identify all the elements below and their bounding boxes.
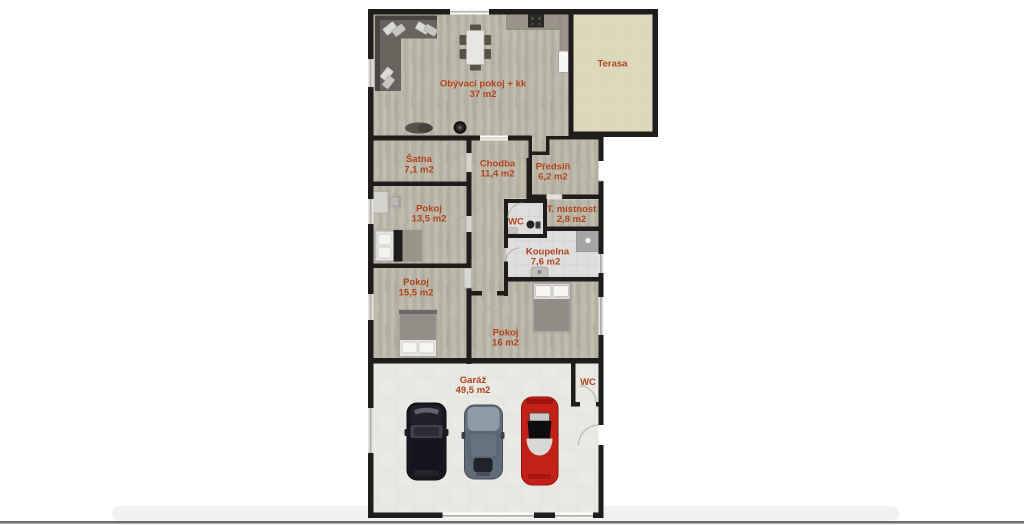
svg-text:Obývací pokoj + kk: Obývací pokoj + kk	[440, 79, 527, 90]
svg-text:WC: WC	[580, 377, 596, 388]
svg-text:Pokoj: Pokoj	[403, 277, 429, 288]
svg-text:16 m2: 16 m2	[492, 338, 519, 349]
svg-text:13,5 m2: 13,5 m2	[412, 214, 447, 225]
svg-text:37 m2: 37 m2	[470, 89, 497, 100]
svg-text:7,1 m2: 7,1 m2	[404, 165, 434, 176]
svg-text:15,5 m2: 15,5 m2	[399, 288, 434, 299]
svg-text:7,6 m2: 7,6 m2	[531, 257, 561, 268]
svg-text:11,4 m2: 11,4 m2	[480, 169, 514, 180]
svg-text:Terasa: Terasa	[598, 59, 629, 70]
svg-text:6,2 m2: 6,2 m2	[538, 172, 568, 183]
svg-text:49,5 m2: 49,5 m2	[456, 385, 491, 396]
svg-text:Šatna: Šatna	[406, 153, 433, 165]
svg-text:WC: WC	[508, 217, 524, 228]
svg-text:2,8 m2: 2,8 m2	[557, 214, 587, 225]
